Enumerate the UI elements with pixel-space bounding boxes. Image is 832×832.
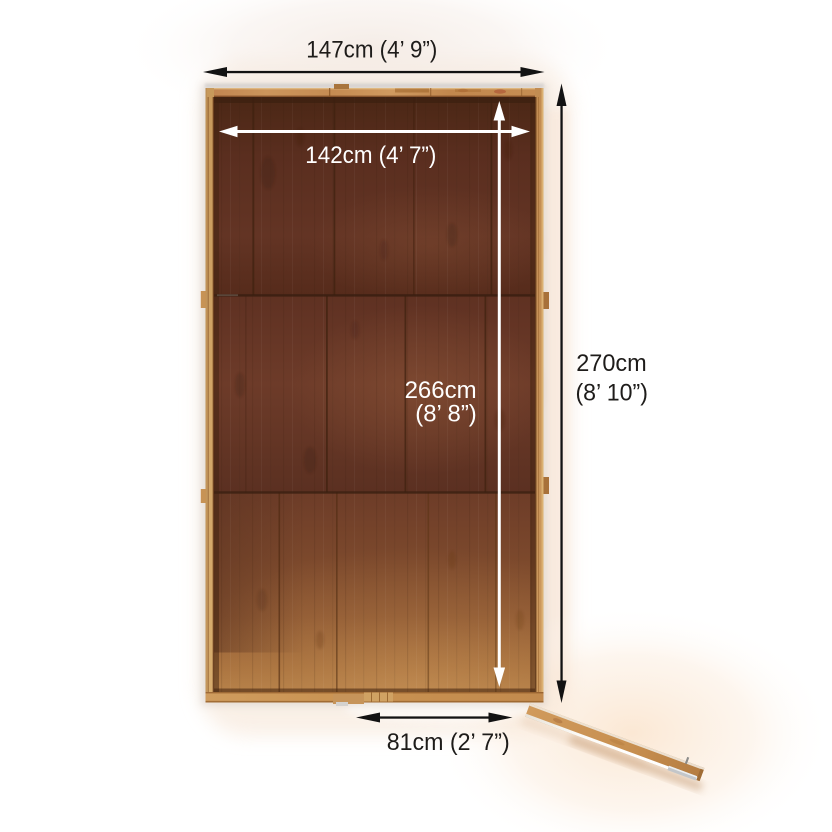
svg-text:(8’ 10”): (8’ 10”) (575, 380, 648, 407)
svg-text:270cm: 270cm (576, 350, 647, 377)
svg-text:142cm (4’ 7”): 142cm (4’ 7”) (305, 142, 436, 169)
svg-text:81cm (2’ 7”): 81cm (2’ 7”) (387, 729, 510, 756)
svg-text:(8’ 8”): (8’ 8”) (415, 401, 477, 428)
svg-text:147cm (4’ 9”): 147cm (4’ 9”) (306, 37, 437, 64)
